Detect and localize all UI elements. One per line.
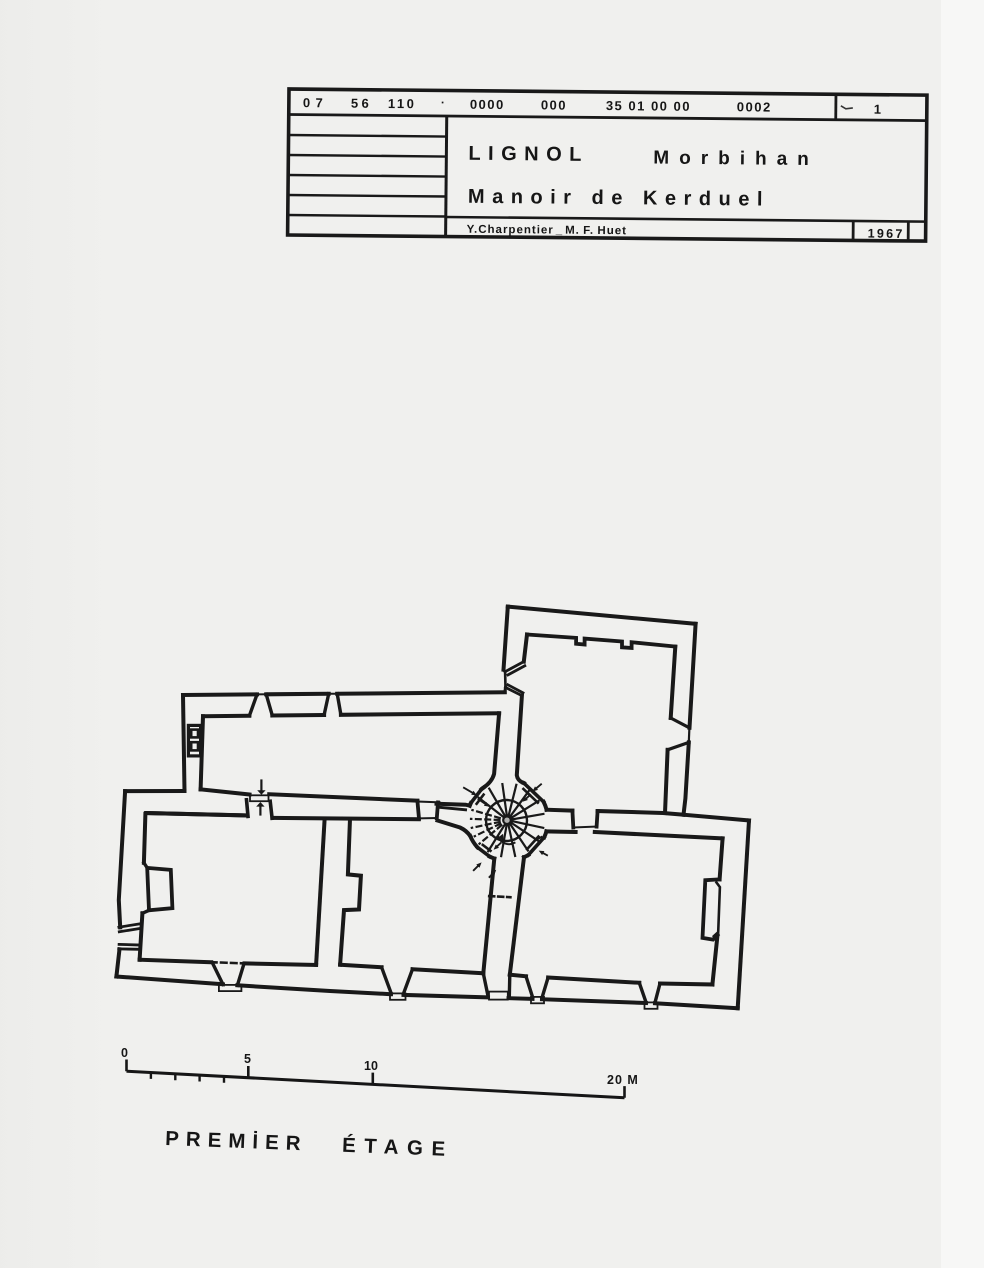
svg-text:0002: 0002 <box>737 99 772 114</box>
svg-text:5: 5 <box>244 1052 251 1066</box>
svg-text:000: 000 <box>541 97 567 112</box>
svg-text:LIGNOL: LIGNOL <box>468 143 589 166</box>
svg-text:Manoir de Kerduel: Manoir de Kerduel <box>468 186 770 211</box>
svg-text:·: · <box>441 95 445 109</box>
svg-text:0: 0 <box>121 1046 128 1060</box>
svg-text:Y.Charpentier _ M. F. Huet: Y.Charpentier _ M. F. Huet <box>467 224 627 238</box>
svg-text:10: 10 <box>364 1059 378 1073</box>
svg-text:1: 1 <box>874 102 881 117</box>
svg-text:56: 56 <box>351 96 373 111</box>
svg-text:07: 07 <box>303 95 329 110</box>
svg-text:1967: 1967 <box>868 227 905 241</box>
svg-text:ÉTAGE: ÉTAGE <box>342 1134 454 1161</box>
svg-text:Morbihan: Morbihan <box>653 148 819 171</box>
svg-text:35 01 00 00: 35 01 00 00 <box>606 98 691 114</box>
svg-text:0000: 0000 <box>470 97 505 112</box>
svg-text:20 M: 20 M <box>607 1073 639 1087</box>
svg-text:110: 110 <box>388 96 417 111</box>
